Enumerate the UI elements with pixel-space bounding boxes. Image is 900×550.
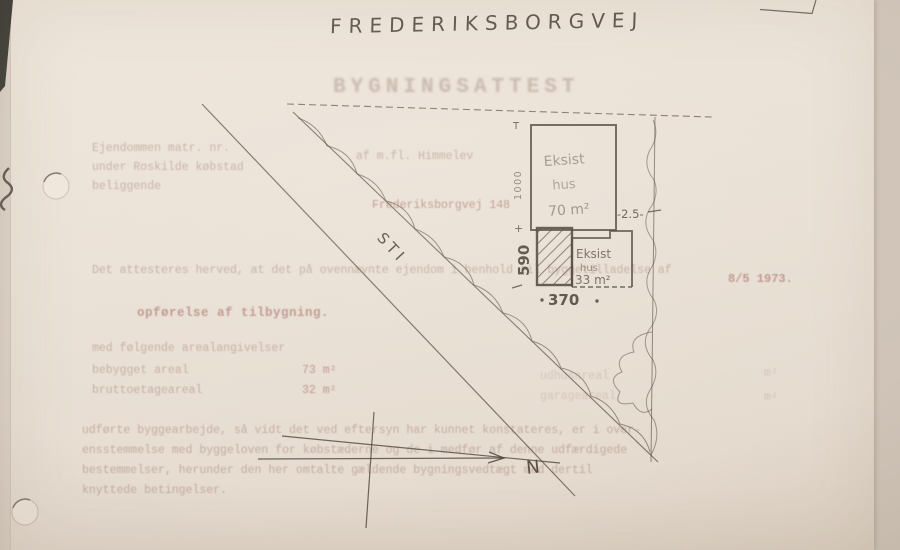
hedge-scallop-line bbox=[645, 120, 657, 455]
photo-corner-shadow bbox=[0, 0, 13, 92]
dim-tick bbox=[648, 210, 661, 212]
dim-370: 370 bbox=[548, 291, 579, 309]
compass-line bbox=[366, 412, 374, 528]
new-addition-hatched bbox=[537, 228, 572, 285]
path-label: STI bbox=[373, 229, 410, 267]
dim-2-5: -2.5- bbox=[617, 207, 644, 221]
site-plan-drawing: Eksist hus 70 m² Eksist hus 33 m² T 1000… bbox=[0, 0, 900, 550]
house33-label-line1: Eksist bbox=[576, 247, 611, 261]
adjacent-page-corner-line bbox=[760, 0, 816, 14]
margin-scribble bbox=[1, 168, 12, 210]
north-label: N bbox=[525, 457, 541, 479]
house33-label-line3: 33 m² bbox=[575, 273, 611, 287]
house70-label-line2: hus bbox=[552, 177, 576, 194]
path-west-edge-line bbox=[202, 104, 575, 496]
dim-dot bbox=[595, 299, 598, 302]
north-arrow-line bbox=[258, 458, 503, 459]
dim-dot bbox=[540, 298, 543, 301]
dim-590: 590 bbox=[515, 245, 533, 276]
east-boundary-line bbox=[651, 117, 655, 462]
dim-1000: 1000 bbox=[513, 170, 524, 200]
house70-label-line1: Eksist bbox=[543, 151, 585, 170]
dim-top-tick: T bbox=[512, 121, 520, 132]
path-east-edge-line bbox=[293, 112, 658, 462]
house70-label-line3: 70 m² bbox=[548, 201, 591, 220]
north-boundary-line bbox=[287, 104, 712, 117]
dim-tick bbox=[512, 285, 522, 288]
dim-plus-mark: + bbox=[514, 222, 523, 235]
scanned-document-photo: FREDERIKSBORGVEJ BYGNINGSATTEST Ejendomm… bbox=[0, 0, 900, 550]
